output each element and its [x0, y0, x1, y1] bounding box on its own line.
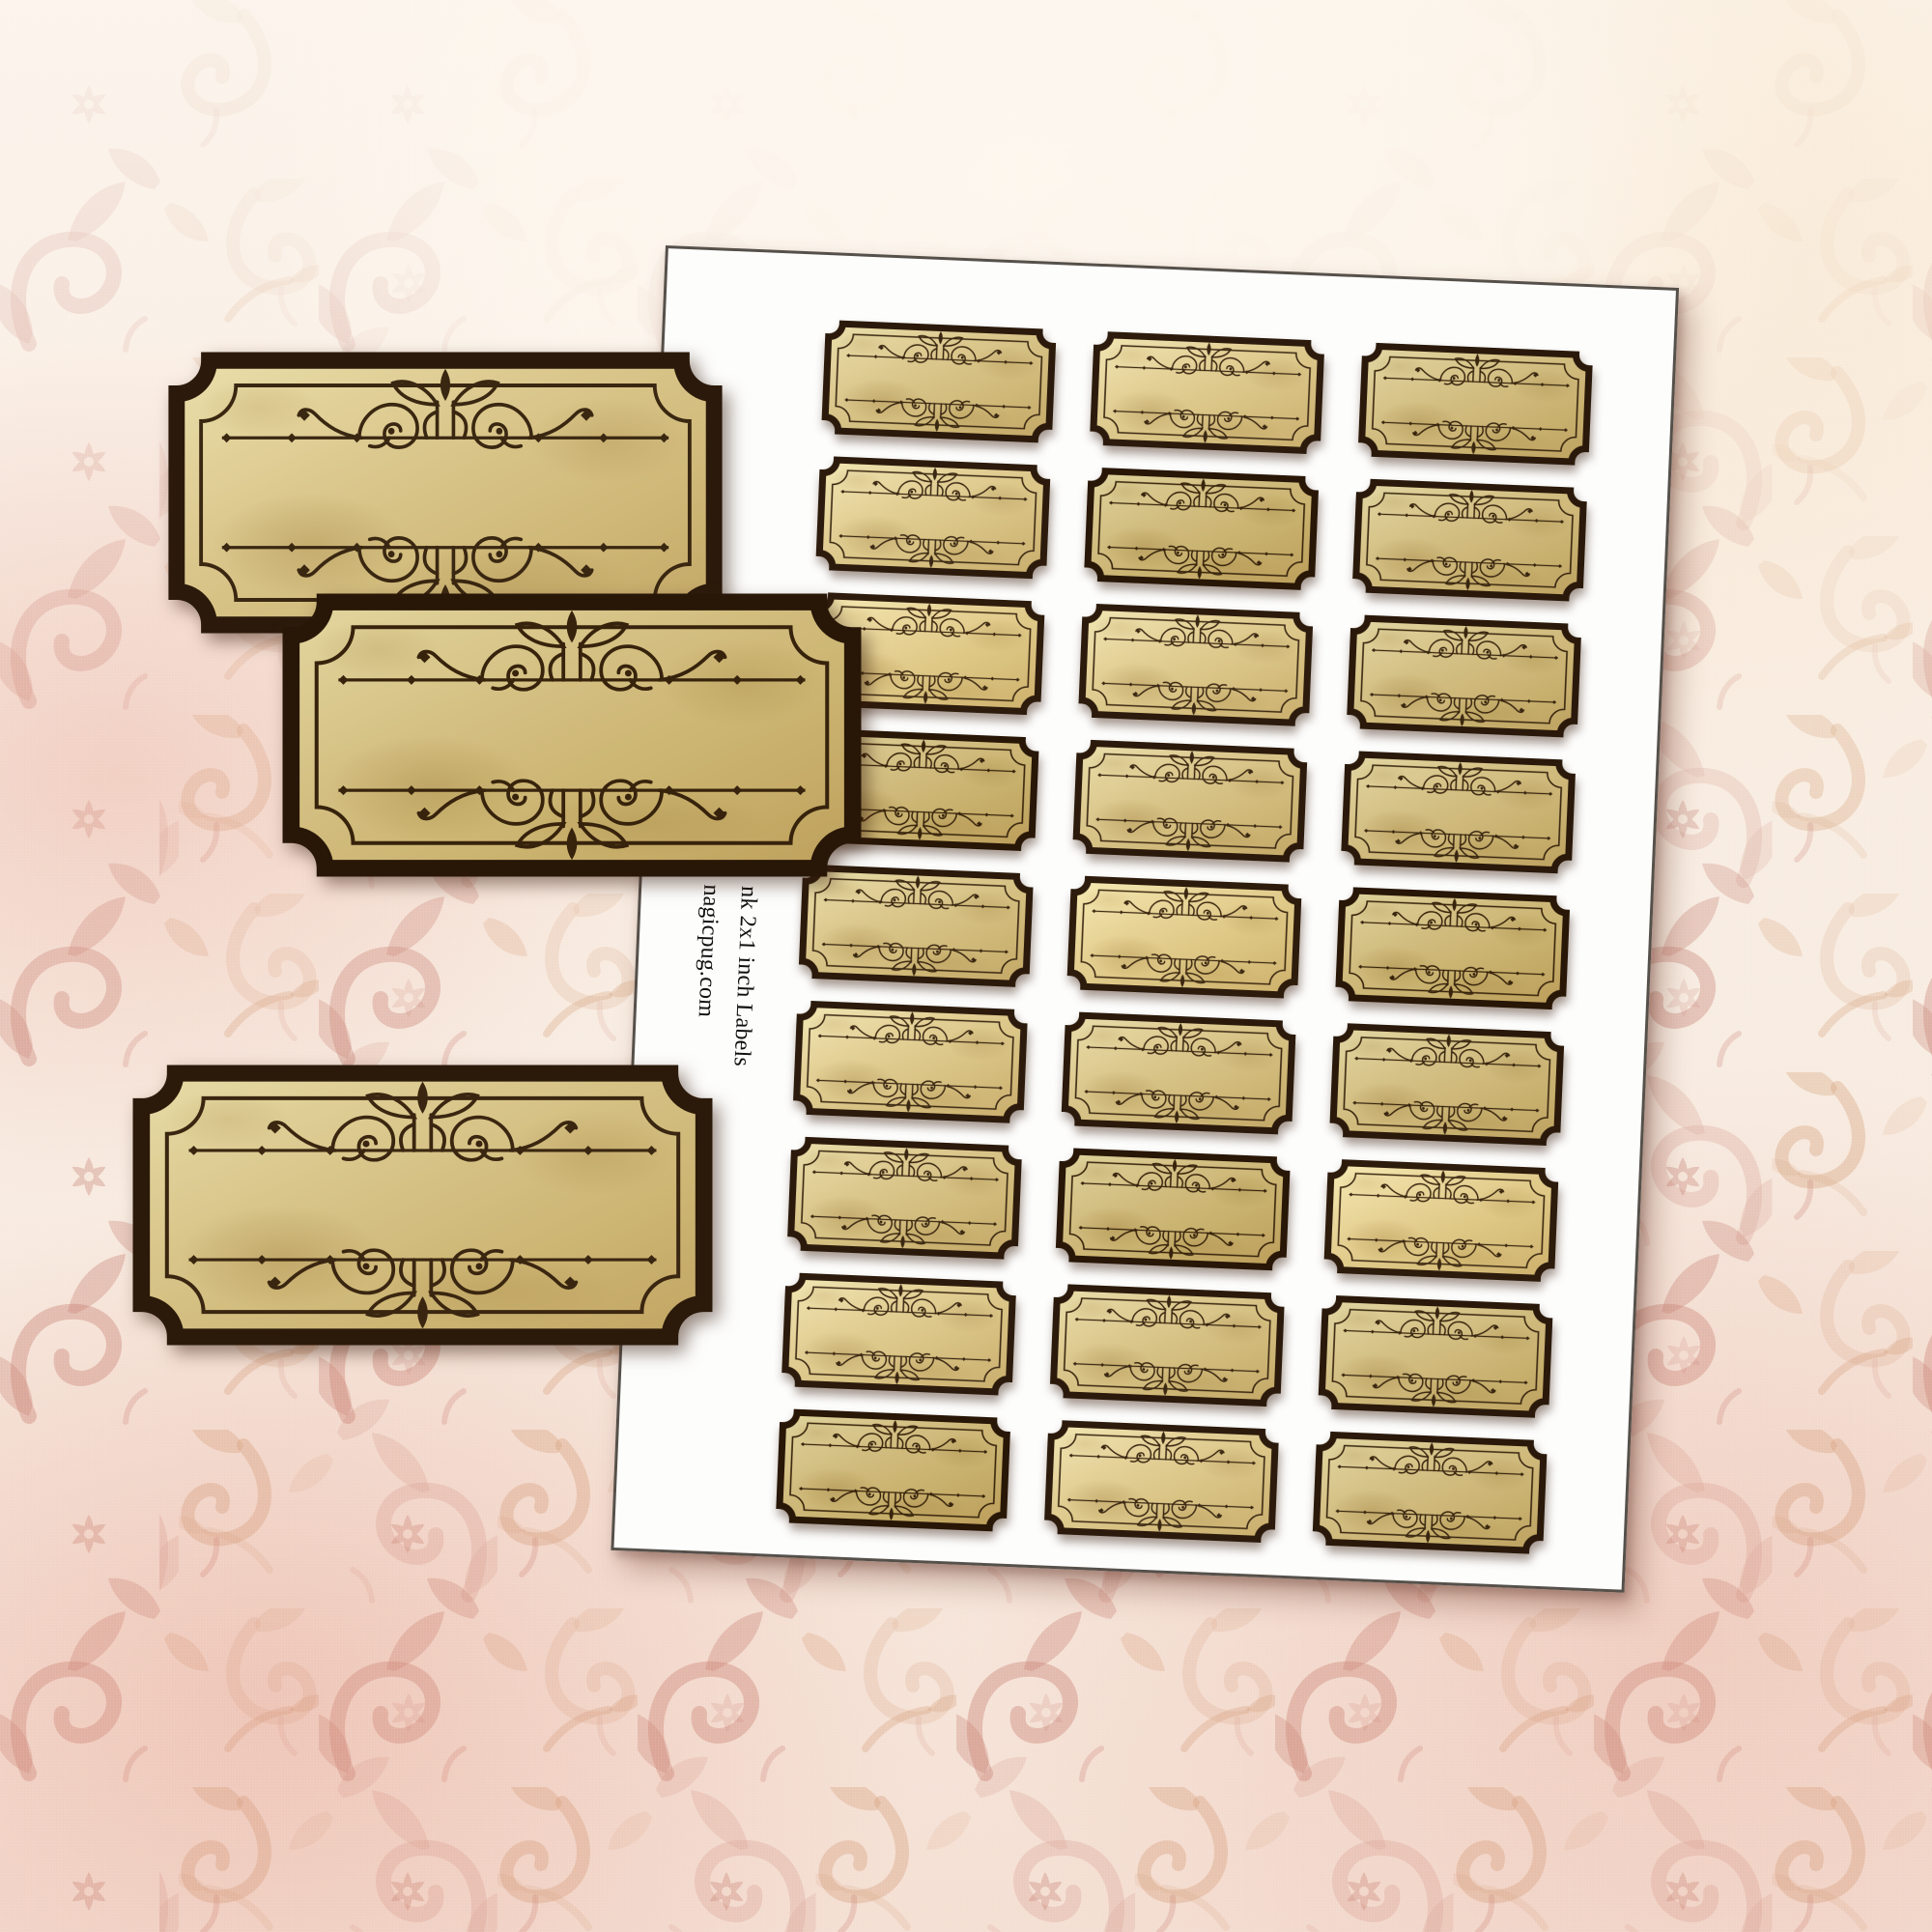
- blank-label: [1071, 738, 1309, 864]
- blank-label: [1351, 477, 1589, 603]
- blank-label: [775, 1407, 1012, 1533]
- blank-label: [820, 319, 1058, 444]
- blank-label: [1334, 886, 1572, 1011]
- label-grid: [775, 319, 1595, 1555]
- blank-label: [1054, 1147, 1292, 1272]
- blank-label: [1356, 341, 1594, 467]
- blank-label: [1089, 330, 1326, 456]
- blank-label: [1077, 602, 1315, 727]
- large-blank-label-2: [280, 591, 864, 879]
- blank-label: [1042, 1419, 1280, 1545]
- printable-label-sheet: nk 2x1 inch Labels nagicpug.com: [611, 245, 1679, 1593]
- blank-label: [1083, 466, 1321, 591]
- large-blank-label-3: [130, 1063, 715, 1348]
- blank-label: [1311, 1430, 1548, 1555]
- blank-label: [797, 863, 1035, 988]
- blank-label: [791, 999, 1029, 1124]
- blank-label: [1340, 750, 1577, 875]
- blank-label: [1048, 1283, 1286, 1408]
- blank-label: [1328, 1022, 1566, 1148]
- blank-label: [781, 1271, 1018, 1397]
- blank-label: [1317, 1293, 1554, 1419]
- blank-label: [1065, 874, 1303, 1000]
- blank-label: [1060, 1010, 1297, 1136]
- blank-label: [786, 1135, 1024, 1261]
- blank-label: [1346, 613, 1583, 739]
- scene: nk 2x1 inch Labels nagicpug.com: [0, 0, 1932, 1932]
- blank-label: [1322, 1158, 1560, 1284]
- blank-label: [814, 455, 1052, 581]
